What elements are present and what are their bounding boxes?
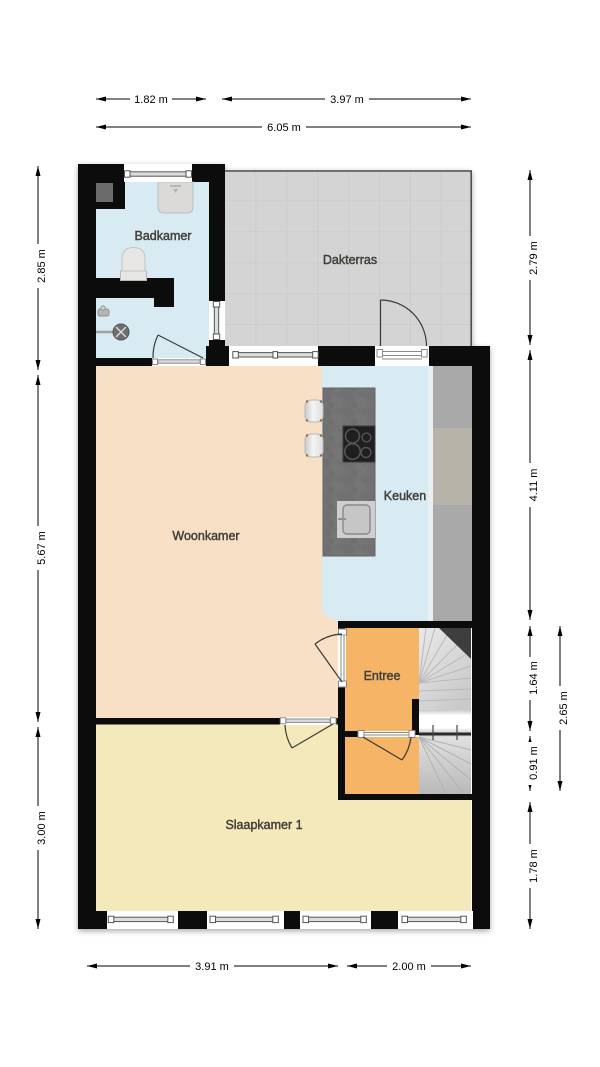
svg-text:5.67 m: 5.67 m (36, 531, 48, 565)
svg-text:Woonkamer: Woonkamer (172, 529, 239, 543)
svg-text:3.00 m: 3.00 m (36, 811, 48, 845)
svg-text:2.79 m: 2.79 m (528, 241, 540, 275)
svg-text:2.00 m: 2.00 m (392, 961, 426, 973)
svg-text:Entree: Entree (364, 669, 401, 683)
svg-text:6.05 m: 6.05 m (267, 122, 301, 134)
svg-text:1.82 m: 1.82 m (134, 94, 168, 106)
svg-text:2.65 m: 2.65 m (558, 691, 570, 725)
svg-text:Dakterras: Dakterras (323, 253, 377, 267)
svg-text:1.78 m: 1.78 m (528, 849, 540, 883)
svg-text:3.91 m: 3.91 m (195, 961, 229, 973)
svg-text:2.85 m: 2.85 m (36, 249, 48, 283)
svg-text:Keuken: Keuken (384, 489, 426, 503)
svg-text:1.64 m: 1.64 m (528, 661, 540, 695)
svg-text:4.11 m: 4.11 m (528, 469, 540, 502)
svg-text:Badkamer: Badkamer (135, 229, 192, 243)
svg-text:3.97 m: 3.97 m (330, 94, 364, 106)
svg-text:0.91 m: 0.91 m (528, 746, 540, 780)
svg-text:Slaapkamer 1: Slaapkamer 1 (225, 818, 302, 832)
